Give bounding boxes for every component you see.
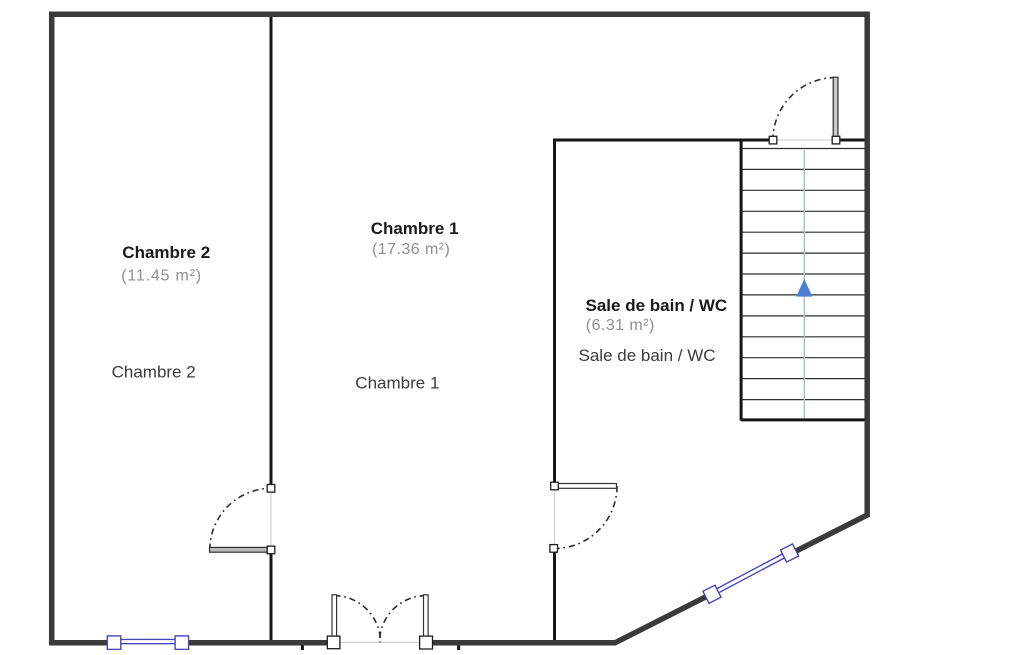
svg-text:(17.36 m²): (17.36 m²) xyxy=(372,241,450,258)
svg-text:Sale de bain / WC: Sale de bain / WC xyxy=(586,296,728,315)
svg-text:(11.45 m²): (11.45 m²) xyxy=(121,268,202,285)
svg-text:(6.31 m²): (6.31 m²) xyxy=(586,317,655,334)
svg-text:Chambre 1: Chambre 1 xyxy=(371,219,459,238)
svg-text:Chambre 2: Chambre 2 xyxy=(122,243,210,262)
svg-text:Chambre 2: Chambre 2 xyxy=(112,363,196,382)
svg-text:Chambre 1: Chambre 1 xyxy=(355,373,439,392)
svg-text:Sale de bain / WC: Sale de bain / WC xyxy=(579,346,716,365)
